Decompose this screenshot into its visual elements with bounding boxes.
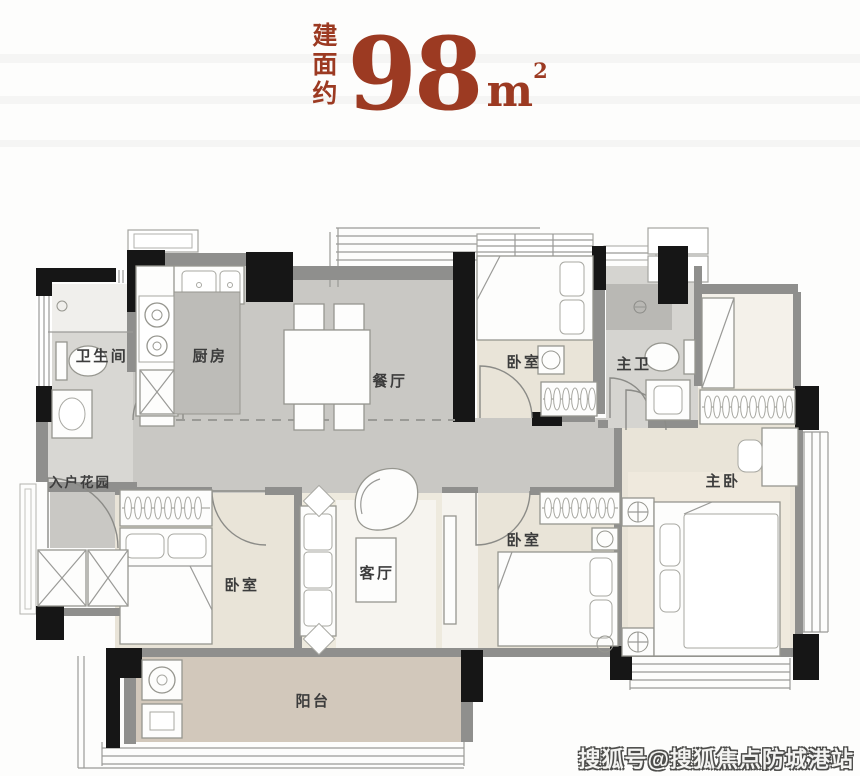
room-label-balcony: 阳台 — [295, 692, 330, 710]
room-label-master-bath: 主卫 — [616, 355, 651, 373]
room-label-kitchen: 厨房 — [192, 347, 227, 365]
room-label-living: 客厅 — [358, 564, 394, 582]
balcony-fixtures — [142, 660, 182, 738]
room-label-master-bedroom: 主卧 — [705, 472, 740, 490]
floor-plan-drawing: 卫生间 厨房 餐厅 卧室 主卫 入户花园 卧室 客厅 卧室 主卧 阳台 — [0, 0, 860, 776]
watermark-text: 搜狐号@搜狐焦点防城港站 — [579, 742, 854, 774]
room-label-bathroom: 卫生间 — [76, 347, 129, 365]
room-label-bedroom-mid: 卧室 — [506, 531, 541, 549]
floorplan-page: 建 面 约 98 m2 — [0, 0, 860, 776]
room-label-dining: 餐厅 — [372, 372, 407, 390]
room-label-entry-garden: 入户花园 — [49, 474, 111, 490]
entry-shaft — [38, 550, 128, 606]
bedroom-left-furniture — [120, 490, 212, 644]
room-label-bedroom-left: 卧室 — [224, 576, 259, 594]
room-label-bedroom-top: 卧室 — [506, 353, 541, 371]
